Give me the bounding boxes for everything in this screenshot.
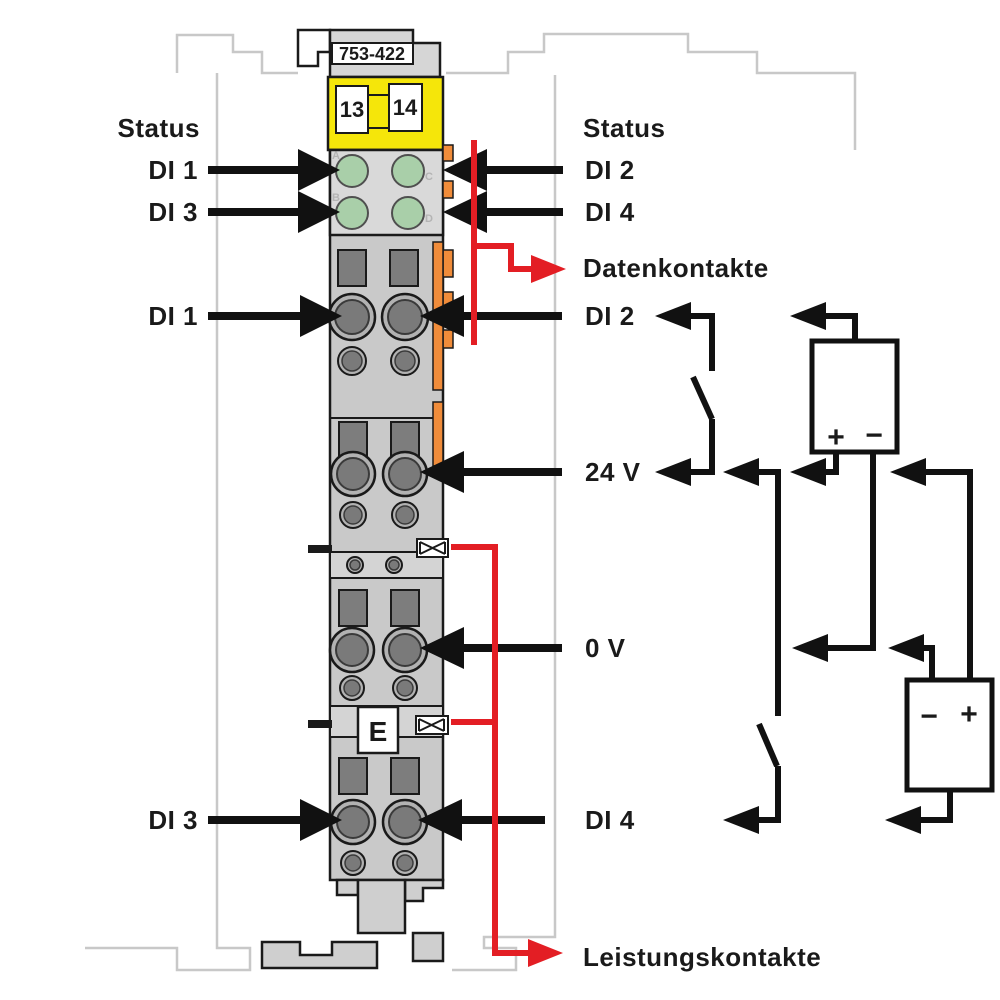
power-contacts-arrowhead: [528, 939, 563, 967]
led-label-b: B: [332, 192, 340, 204]
status-right-label: Status: [583, 113, 665, 143]
neighbor-bottom-left-outline: [85, 935, 250, 970]
power-blade-left-2: [308, 720, 332, 728]
led-di1: [336, 155, 368, 187]
di1-led-label: DI 1: [148, 155, 198, 185]
switch1-wire-top: [688, 316, 712, 371]
di4-led-label: DI 4: [585, 197, 635, 227]
data-contacts-arrowhead: [531, 255, 566, 283]
switch1-blade: [693, 377, 712, 419]
clamp-13: 13: [340, 97, 364, 122]
switch1-wire-bottom: [688, 419, 712, 472]
supply2-minus: −: [920, 700, 938, 733]
led-label-c: C: [425, 171, 433, 183]
data-contacts-label: Datenkontakte: [583, 253, 769, 283]
led-label-a: A: [332, 150, 340, 162]
switch2-blade: [759, 724, 777, 766]
led-di3: [336, 197, 368, 229]
led-label-d: D: [425, 213, 433, 225]
external-circuit: + − − +: [655, 302, 992, 834]
supply2-plus: +: [960, 698, 978, 731]
supply1-wire-top: [823, 316, 855, 341]
supply2-box: [907, 680, 992, 790]
diagram-page: 753-422 13 14 A B C D: [0, 0, 1000, 1000]
supply1-minus: −: [865, 419, 883, 452]
supply1-box: [812, 341, 897, 452]
supply1-minus-wire: [825, 452, 873, 648]
power-contacts-line: [451, 547, 530, 953]
neighbor-top-left-outline: [177, 35, 298, 73]
clamp-14: 14: [393, 95, 418, 120]
di1-terminal-label: DI 1: [148, 301, 198, 331]
led-di4: [392, 197, 424, 229]
wiring-diagram: 753-422 13 14 A B C D: [0, 0, 1000, 1000]
power-blade-left-1: [308, 545, 332, 553]
switch2-wire-bottom: [756, 766, 778, 820]
di2-terminal-label: DI 2: [585, 301, 635, 331]
part-number: 753-422: [339, 44, 405, 64]
power-contacts-label: Leistungskontakte: [583, 942, 821, 972]
di3-led-label: DI 3: [148, 197, 198, 227]
status-left-label: Status: [118, 113, 200, 143]
module-top-hook: [298, 30, 330, 66]
supply2-bottom-wire: [918, 790, 950, 820]
di3-terminal-label: DI 3: [148, 805, 198, 835]
v24-label: 24 V: [585, 457, 641, 487]
led-di2: [392, 155, 424, 187]
switch2-wire-top: [756, 472, 778, 716]
di2-led-label: DI 2: [585, 155, 635, 185]
labels: Status DI 1 DI 3 DI 1 DI 3 Status DI 2 D…: [118, 113, 822, 972]
supply1-plus: +: [827, 421, 845, 454]
side-jumper-lower: [433, 402, 443, 466]
v0-label: 0 V: [585, 633, 626, 663]
earth-label: E: [369, 716, 388, 747]
di4-terminal-label: DI 4: [585, 805, 635, 835]
red-contact-lines: [451, 140, 566, 967]
din-rail-foot: [262, 880, 443, 968]
